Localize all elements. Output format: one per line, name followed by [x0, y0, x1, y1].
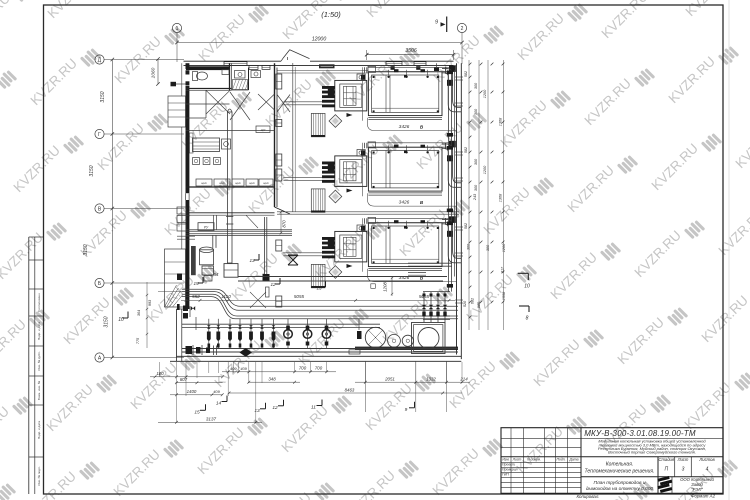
svg-text:Лист: Лист — [677, 457, 689, 462]
svg-text:12000: 12000 — [312, 37, 327, 43]
svg-text:1200: 1200 — [483, 89, 487, 98]
svg-text:10: 10 — [524, 284, 530, 290]
svg-text:54: 54 — [214, 272, 219, 277]
svg-text:8463: 8463 — [345, 387, 355, 392]
svg-text:582: 582 — [464, 146, 468, 153]
svg-text:Копировал.: Копировал. — [576, 494, 599, 499]
svg-text:1368: 1368 — [499, 193, 503, 202]
svg-text:5055: 5055 — [419, 294, 430, 299]
svg-text:Стадия: Стадия — [658, 457, 674, 462]
svg-text:1200: 1200 — [483, 165, 487, 174]
svg-text:552: 552 — [192, 294, 200, 299]
svg-text:3150: 3150 — [83, 244, 89, 255]
svg-text:щит: щит — [263, 182, 270, 185]
svg-text:Дата: Дата — [569, 458, 579, 462]
svg-text:300: 300 — [467, 243, 471, 250]
svg-text:1200: 1200 — [502, 243, 506, 252]
svg-text:3: 3 — [682, 467, 685, 473]
svg-text:3426: 3426 — [399, 200, 410, 206]
svg-text:щит: щит — [249, 182, 256, 185]
svg-text:1332: 1332 — [426, 376, 436, 381]
svg-text:щит: щит — [219, 182, 226, 185]
svg-text:520: 520 — [463, 300, 467, 307]
svg-text:Проверил: Проверил — [502, 468, 518, 472]
svg-text:9: 9 — [435, 20, 438, 26]
svg-text:дымоходов на отметку 0,000: дымоходов на отметку 0,000 — [586, 486, 654, 492]
svg-text:300: 300 — [474, 158, 478, 165]
svg-text:3150: 3150 — [89, 165, 95, 176]
svg-text:775: 775 — [136, 337, 140, 344]
svg-text:807: 807 — [180, 377, 188, 382]
svg-text:щит: щит — [201, 182, 208, 185]
svg-text:3137: 3137 — [206, 417, 217, 422]
svg-text:100: 100 — [156, 371, 164, 376]
svg-text:870: 870 — [282, 220, 287, 228]
svg-text:МКУ-В-300-3.01.08.19.00-ТМ: МКУ-В-300-3.01.08.19.00-ТМ — [584, 429, 696, 438]
svg-text:3150: 3150 — [104, 316, 110, 327]
svg-text:14: 14 — [216, 401, 222, 407]
svg-text:300: 300 — [474, 184, 478, 191]
svg-text:980: 980 — [477, 301, 481, 308]
svg-text:Лист: Лист — [512, 458, 522, 462]
svg-text:П: П — [664, 467, 668, 473]
svg-text:12: 12 — [272, 405, 278, 411]
svg-text:Формат А2: Формат А2 — [691, 494, 716, 499]
svg-text:1: 1 — [176, 26, 179, 32]
svg-text:3426: 3426 — [399, 275, 410, 281]
svg-text:993: 993 — [148, 299, 152, 306]
svg-text:План трубопроводов и: План трубопроводов и — [593, 480, 645, 486]
svg-text:Согласовано: Согласовано — [37, 293, 41, 312]
svg-text:409: 409 — [230, 366, 237, 371]
svg-text:8: 8 — [526, 316, 529, 322]
svg-text:1208: 1208 — [383, 282, 388, 292]
svg-text:300: 300 — [474, 108, 478, 115]
svg-text:Изм.: Изм. — [502, 458, 509, 462]
svg-text:700: 700 — [315, 366, 323, 371]
svg-text:Инв. № дубл.: Инв. № дубл. — [37, 351, 41, 370]
svg-text:Г: Г — [98, 132, 101, 138]
svg-text:3506: 3506 — [405, 48, 417, 54]
svg-text:300: 300 — [486, 244, 490, 251]
svg-text:щит: щит — [235, 182, 242, 185]
svg-text:N докум.: N докум. — [527, 458, 541, 462]
svg-text:4: 4 — [706, 467, 709, 473]
svg-text:243: 243 — [473, 193, 477, 201]
svg-text:1558: 1558 — [502, 291, 506, 300]
svg-text:3150: 3150 — [100, 91, 106, 102]
svg-text:2051: 2051 — [384, 376, 395, 381]
svg-text:Восточный портал Северомуйског: Восточный портал Северомуйского тоннеля. — [608, 450, 696, 455]
svg-text:Проект.: Проект. — [502, 463, 516, 467]
svg-text:(1:50): (1:50) — [321, 10, 341, 19]
svg-text:Инв. № подл.: Инв. № подл. — [37, 466, 41, 485]
svg-text:Подп. и дата: Подп. и дата — [37, 322, 41, 341]
svg-text:1368: 1368 — [499, 117, 503, 126]
svg-text:15: 15 — [194, 409, 200, 415]
svg-text:13: 13 — [254, 408, 260, 414]
svg-text:1400: 1400 — [187, 389, 197, 394]
svg-text:13: 13 — [316, 286, 322, 291]
svg-text:317: 317 — [501, 266, 505, 273]
svg-text:214: 214 — [459, 376, 468, 381]
svg-text:3426: 3426 — [399, 124, 410, 130]
svg-text:582: 582 — [464, 222, 468, 229]
svg-text:582: 582 — [464, 70, 468, 77]
svg-text:1060: 1060 — [151, 67, 157, 78]
svg-text:348: 348 — [268, 376, 276, 381]
svg-text:1110: 1110 — [221, 294, 231, 299]
svg-text:300: 300 — [474, 82, 478, 89]
svg-text:5055: 5055 — [294, 294, 305, 299]
svg-text:11: 11 — [311, 405, 316, 411]
svg-text:"РЭП": "РЭП" — [691, 487, 703, 492]
svg-text:2: 2 — [461, 26, 464, 32]
svg-text:ГИП: ГИП — [502, 473, 509, 477]
svg-text:409: 409 — [213, 389, 220, 394]
svg-text:9: 9 — [405, 407, 408, 413]
svg-text:409: 409 — [240, 366, 247, 371]
svg-text:682: 682 — [471, 297, 475, 304]
svg-text:700: 700 — [299, 366, 307, 371]
svg-text:Листов: Листов — [698, 457, 715, 462]
svg-text:Подп. и дата: Подп. и дата — [37, 421, 41, 440]
svg-text:Котельная.: Котельная. — [606, 461, 634, 467]
svg-text:Подп.: Подп. — [556, 458, 565, 462]
svg-text:364: 364 — [137, 310, 141, 316]
svg-text:Взам. инв. №: Взам. инв. № — [37, 380, 41, 400]
svg-text:Тепломеханические решения.: Тепломеханические решения. — [585, 468, 655, 474]
